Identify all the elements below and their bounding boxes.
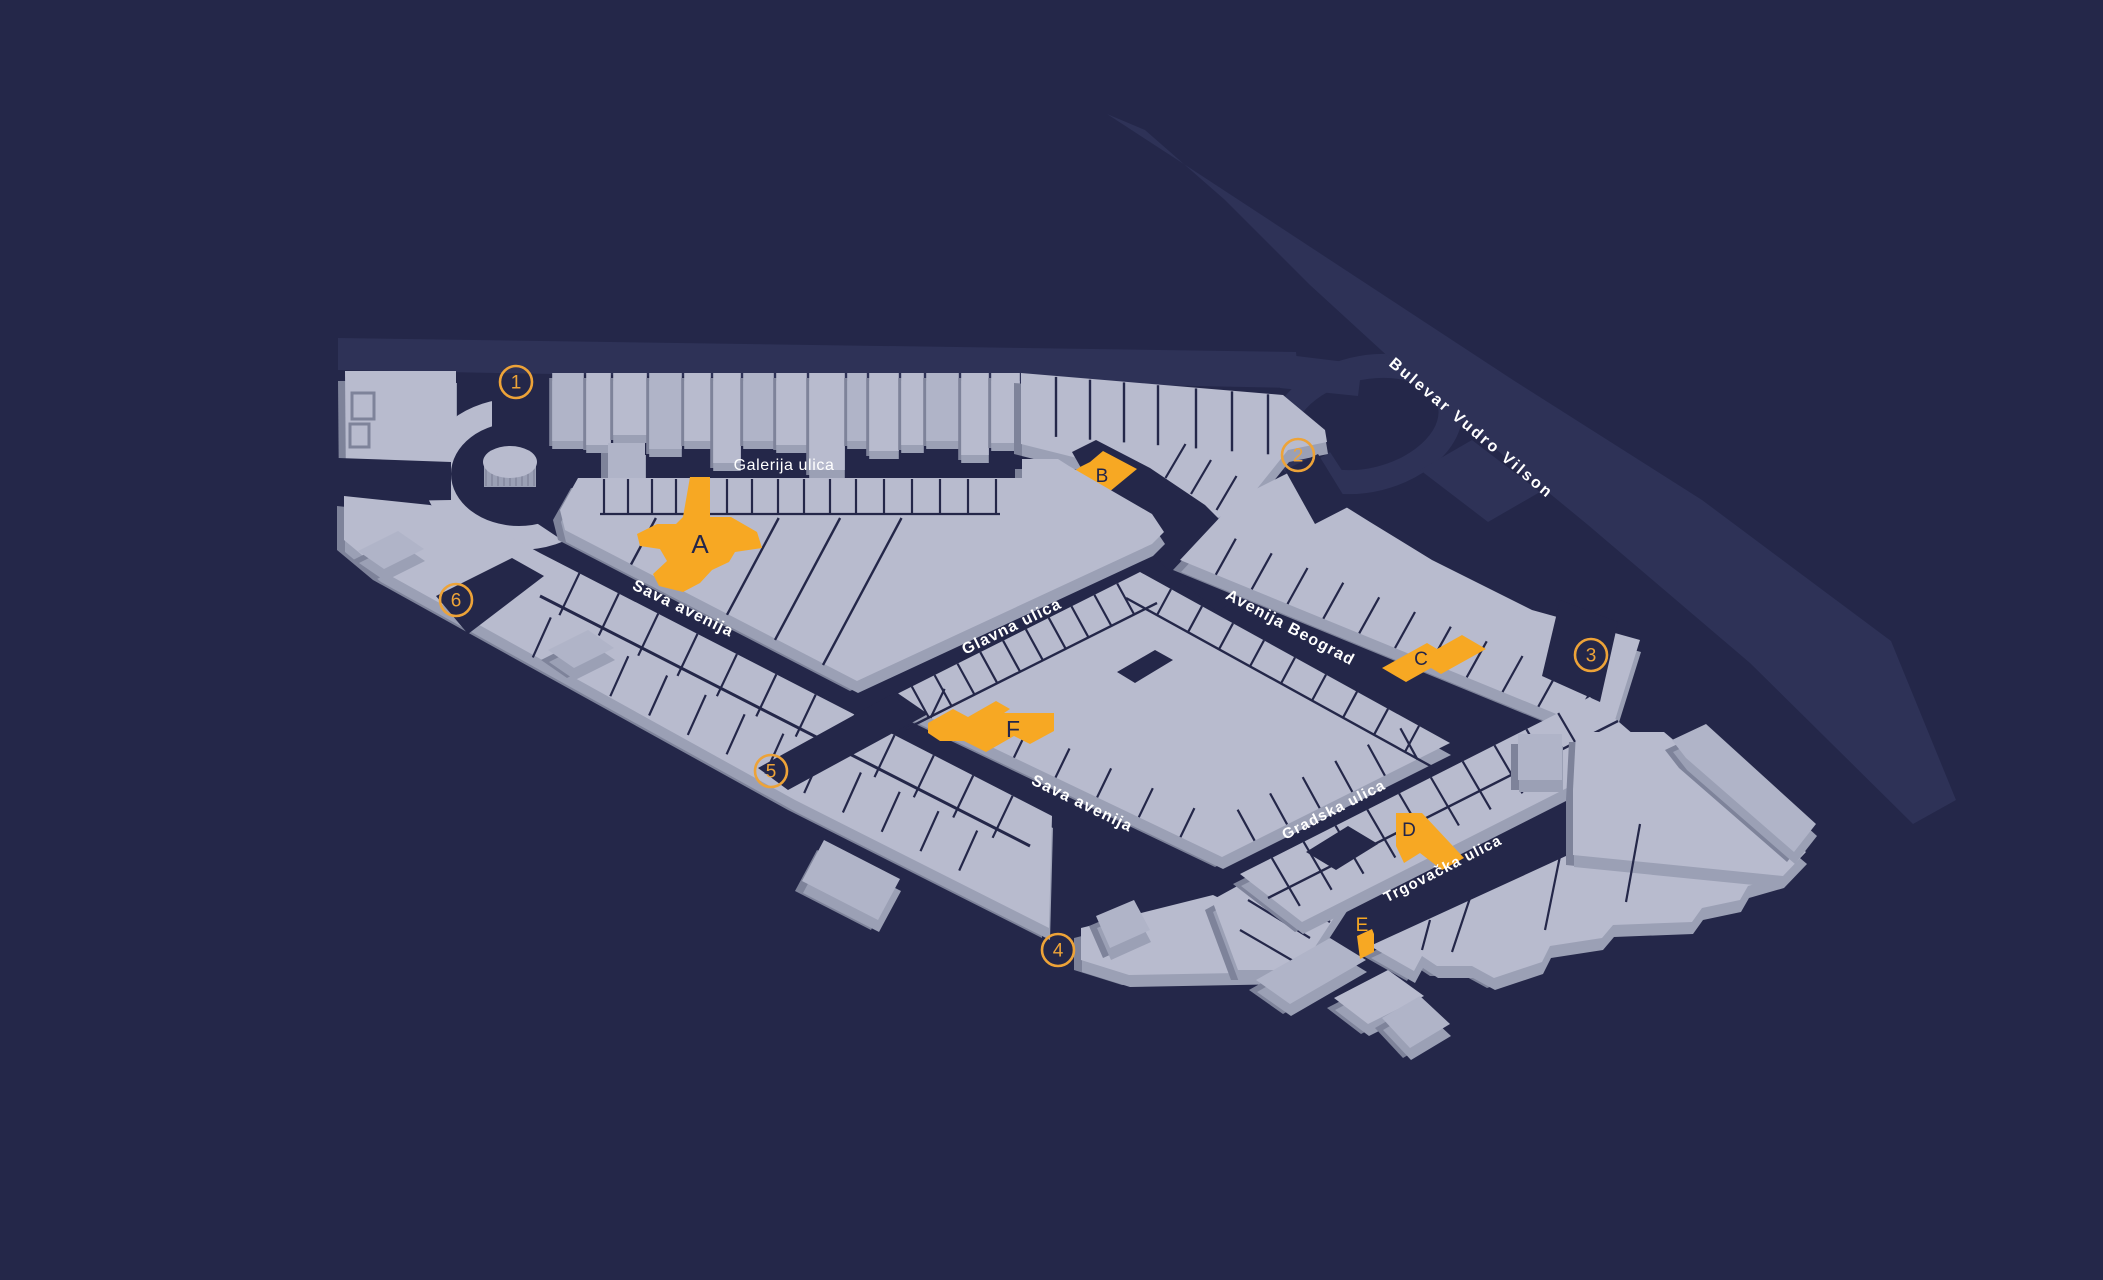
svg-text:5: 5 xyxy=(766,762,777,783)
svg-text:D: D xyxy=(1402,820,1416,841)
svg-text:6: 6 xyxy=(451,591,462,612)
svg-text:E: E xyxy=(1356,915,1369,936)
svg-text:Galerija ulica: Galerija ulica xyxy=(734,457,835,474)
svg-text:F: F xyxy=(1006,716,1020,742)
svg-text:C: C xyxy=(1414,649,1428,670)
svg-text:1: 1 xyxy=(511,373,522,394)
svg-text:3: 3 xyxy=(1586,646,1597,667)
svg-text:4: 4 xyxy=(1053,941,1064,962)
svg-text:A: A xyxy=(691,529,709,559)
svg-text:2: 2 xyxy=(1293,446,1304,467)
